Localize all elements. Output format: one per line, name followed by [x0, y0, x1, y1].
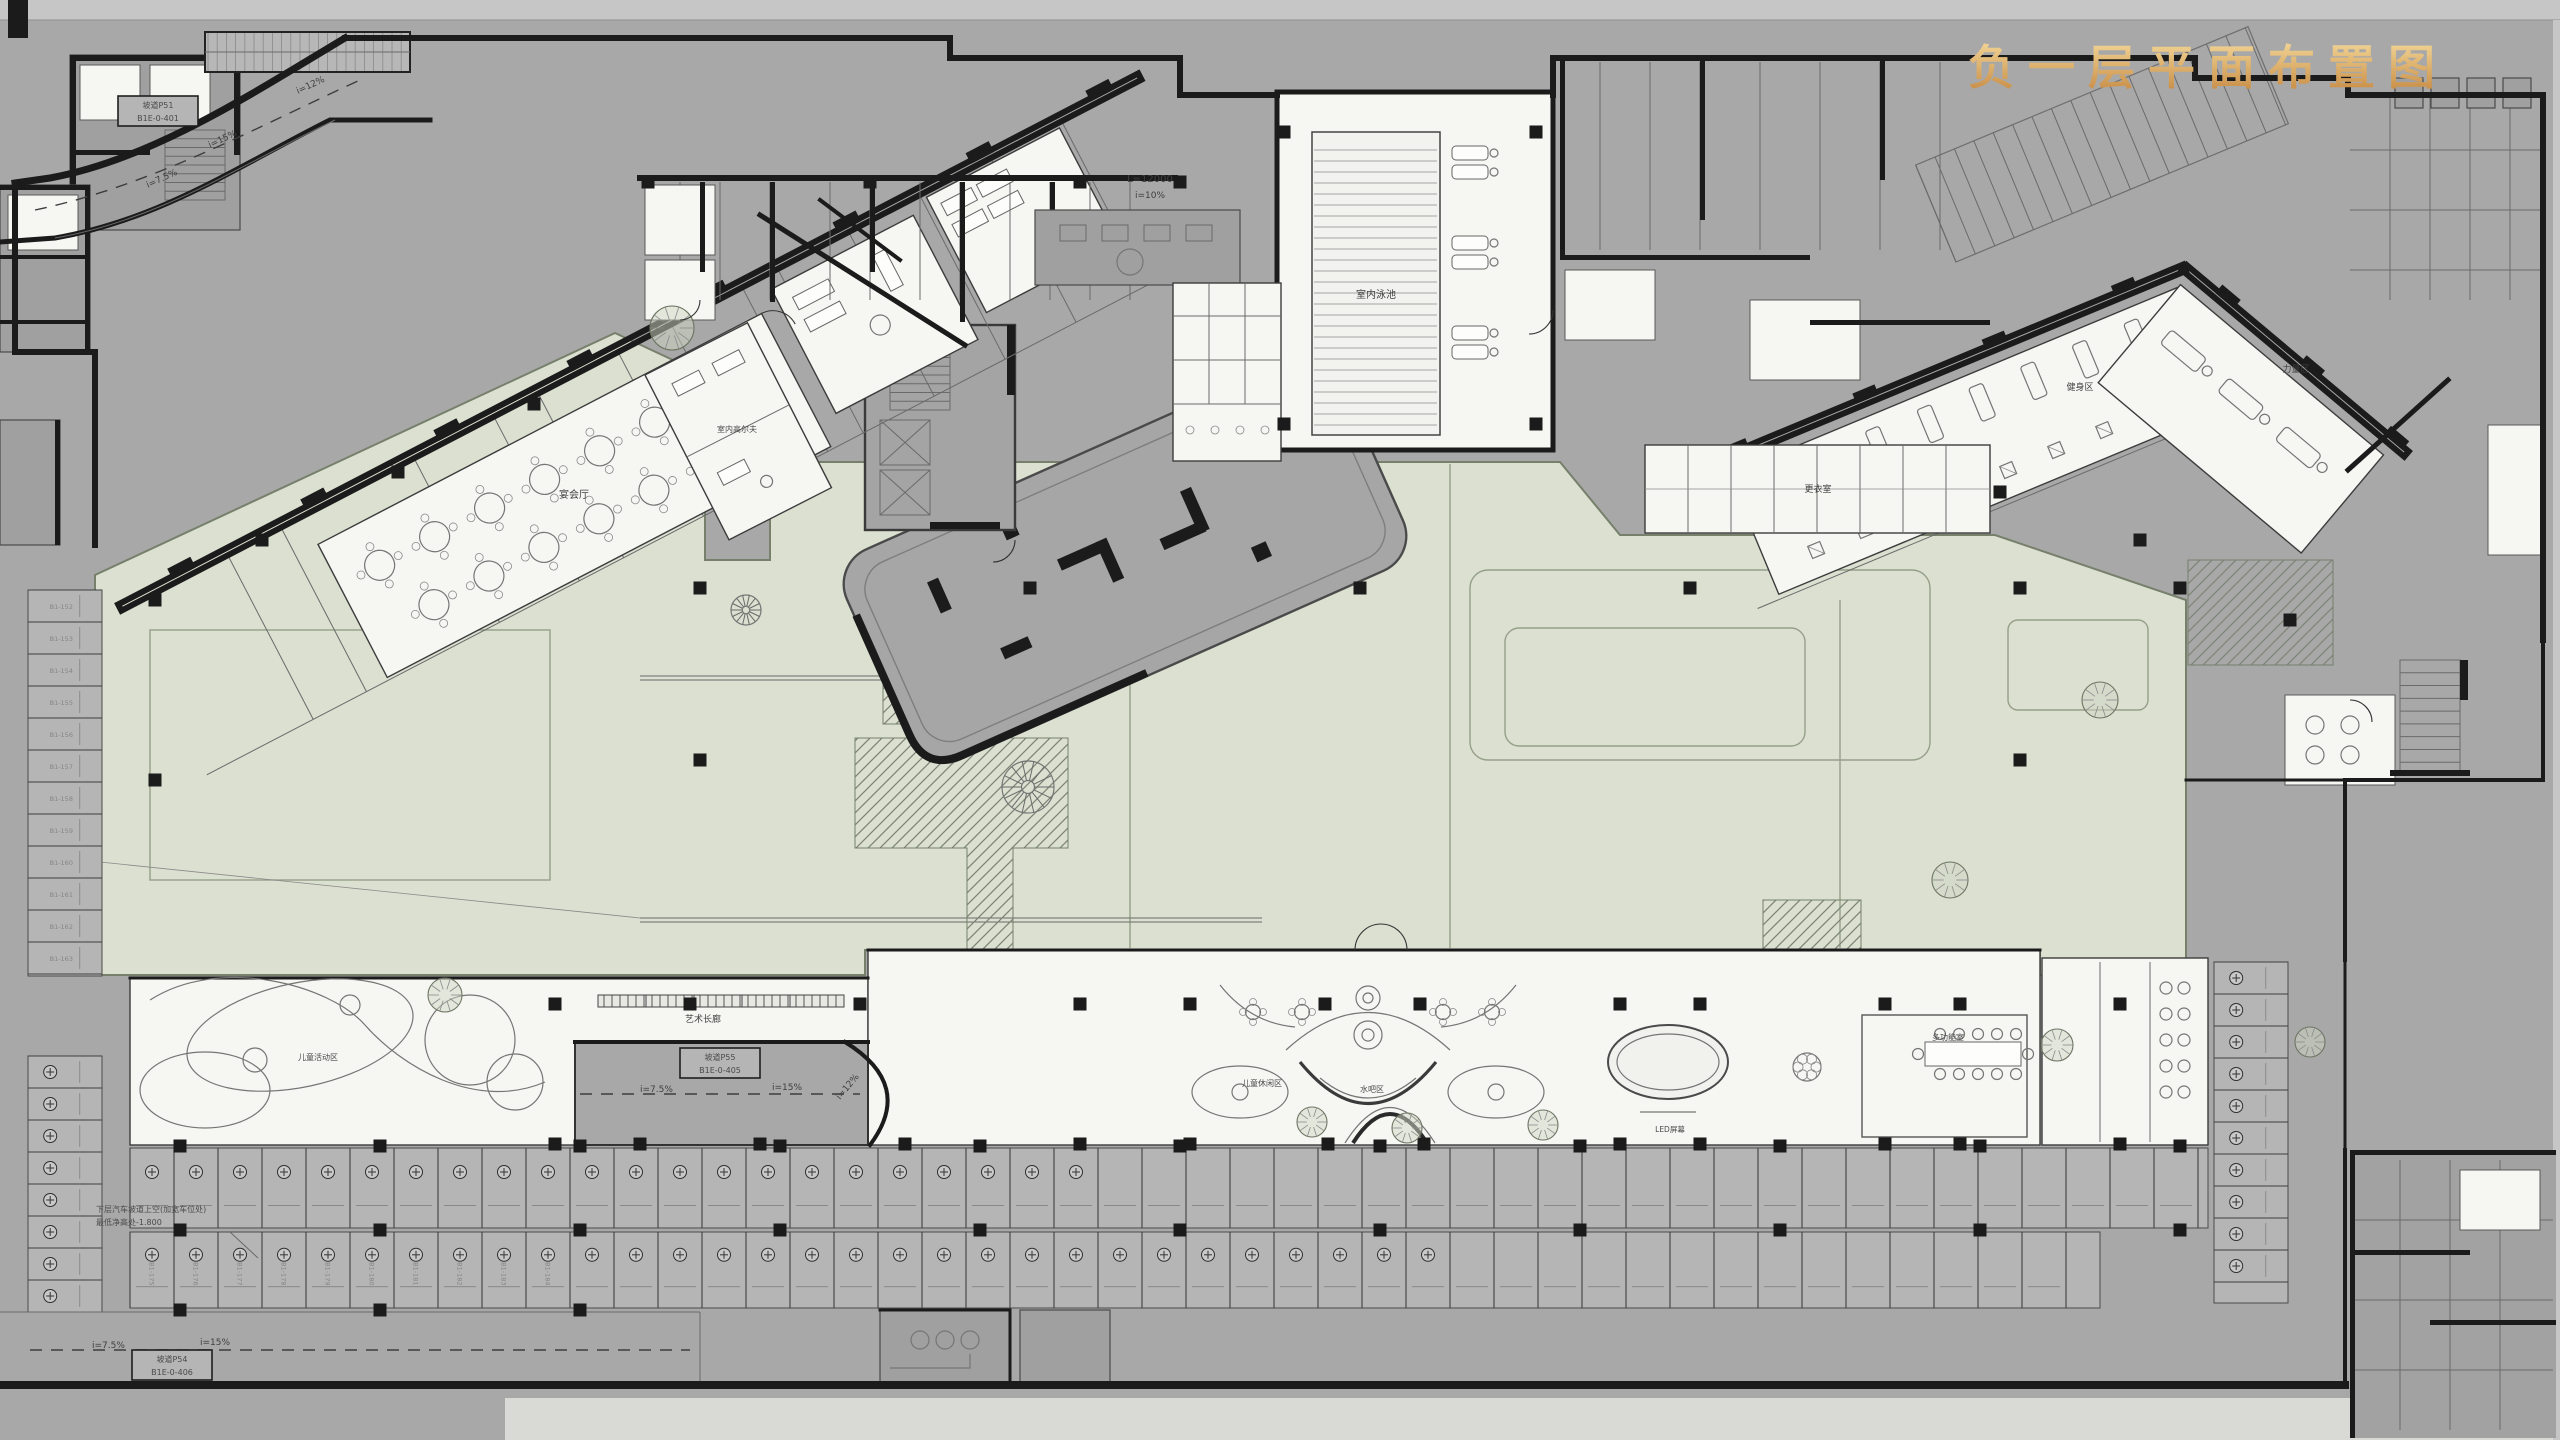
column	[1278, 126, 1291, 139]
stall-number: B1-182	[456, 1262, 464, 1285]
stall-number: B1-152	[50, 603, 73, 611]
column	[1974, 1224, 1987, 1237]
column	[2284, 614, 2297, 627]
bottom-right-block	[2350, 1150, 2556, 1438]
gallery-bench	[598, 995, 652, 1007]
gallery-bench	[790, 995, 844, 1007]
column	[1954, 998, 1967, 1011]
courtyard-hatch	[2188, 560, 2333, 665]
stall-number: B1-180	[368, 1262, 376, 1285]
stall-number: B1-157	[50, 763, 73, 771]
ramp-plate-label: 坡道P55	[704, 1052, 735, 1062]
pool-lounger	[1452, 326, 1488, 340]
column	[1574, 1224, 1587, 1237]
parking-column	[2214, 962, 2288, 1303]
column	[684, 998, 697, 1011]
column	[974, 1140, 987, 1153]
column	[149, 774, 162, 787]
column	[574, 1224, 587, 1237]
column	[2014, 754, 2027, 767]
column	[1418, 1138, 1431, 1151]
corridor-lounge	[868, 950, 2040, 1145]
column	[1074, 998, 1087, 1011]
column	[1354, 582, 1367, 595]
column	[2174, 582, 2187, 595]
banquet-label: 宴会厅	[559, 488, 589, 501]
led-label: LED屏幕	[1655, 1124, 1685, 1134]
pool-lounger	[1452, 236, 1488, 250]
parking-row	[130, 1148, 2208, 1228]
slope-label: i=7.5%	[640, 1085, 673, 1095]
stall-number: B1-160	[50, 859, 73, 867]
column	[1374, 1224, 1387, 1237]
column	[392, 466, 405, 479]
water-bar-label: 水吧区	[1360, 1084, 1384, 1094]
parking-row	[130, 1232, 2100, 1308]
clearance-note: 下层汽车坡道上空(加宽车位处)	[96, 1204, 206, 1214]
column	[774, 1224, 787, 1237]
ramp-plate-label: 坡道P54	[156, 1354, 187, 1364]
pool-lounger	[1452, 165, 1488, 179]
column	[374, 1224, 387, 1237]
stall-number: B1-184	[544, 1262, 552, 1285]
column	[1879, 1138, 1892, 1151]
stall-number: B1-183	[500, 1262, 508, 1285]
column	[1414, 998, 1427, 1011]
column	[1530, 418, 1543, 431]
slope-label: i=15%	[772, 1083, 802, 1093]
stall-number: B1-175	[148, 1262, 156, 1285]
column	[549, 1138, 562, 1151]
pool-lounger	[1452, 146, 1488, 160]
column	[1774, 1140, 1787, 1153]
swimming-pool	[1312, 132, 1440, 435]
gallery-bench	[694, 995, 748, 1007]
bottom-margin-strip	[505, 1398, 2560, 1440]
column	[1954, 1138, 1967, 1151]
column	[1879, 998, 1892, 1011]
slope-label: i=10%	[1135, 191, 1165, 201]
column	[1694, 998, 1707, 1011]
column	[1684, 582, 1697, 595]
column	[1174, 176, 1187, 189]
column	[1774, 1224, 1787, 1237]
column	[1319, 998, 1332, 1011]
ramp-plate-number: B1E-0-401	[137, 114, 179, 123]
column	[1530, 126, 1543, 139]
column	[2014, 582, 2027, 595]
column	[174, 1140, 187, 1153]
column	[174, 1224, 187, 1237]
parking-column	[28, 590, 102, 976]
gallery-label: 艺术长廊	[685, 1013, 721, 1025]
column	[1574, 1140, 1587, 1153]
kids-zone-label: 儿童活动区	[298, 1052, 338, 1062]
column	[1024, 582, 1037, 595]
pool-lounger	[1452, 345, 1488, 359]
changing-label: 更衣室	[1804, 483, 1831, 495]
drawing-title: 负一层平面布置图	[1968, 41, 2448, 96]
column	[2174, 1224, 2187, 1237]
column	[634, 1138, 647, 1151]
kids-lounge-label: 儿童休闲区	[1242, 1078, 1282, 1088]
stall-number: B1-156	[50, 731, 73, 739]
column	[574, 1304, 587, 1317]
column	[694, 582, 707, 595]
ramp-plate-number: B1E-0-406	[151, 1368, 193, 1377]
column	[642, 176, 655, 189]
stall-number: B1-178	[280, 1262, 288, 1285]
ramp-plate-number: B1E-0-405	[699, 1066, 741, 1075]
column	[974, 1224, 987, 1237]
column	[1174, 1140, 1187, 1153]
column	[1694, 1138, 1707, 1151]
column	[528, 398, 541, 411]
column	[1994, 486, 2007, 499]
gallery-benches	[598, 995, 844, 1007]
clearance-note: 最低净高处-1.800	[96, 1217, 162, 1227]
top-margin-strip	[0, 0, 2560, 20]
stall-number: B1-177	[236, 1262, 244, 1285]
column	[174, 1304, 187, 1317]
column	[1374, 1140, 1387, 1153]
column	[1184, 998, 1197, 1011]
column	[854, 998, 867, 1011]
golf-label: 室内高尔夫	[717, 424, 757, 434]
stall-number: B1-161	[50, 891, 73, 899]
column	[2114, 1138, 2127, 1151]
stall-number: B1-153	[50, 635, 73, 643]
gym-label: 健身区	[2066, 381, 2093, 393]
column	[374, 1304, 387, 1317]
plaza-hatch-area	[1763, 900, 1861, 954]
stall-number: B1-155	[50, 699, 73, 707]
pool-hall	[1277, 92, 1553, 450]
stall-number: B1-159	[50, 827, 73, 835]
column	[864, 176, 877, 189]
column	[899, 1138, 912, 1151]
column	[549, 998, 562, 1011]
strength-label: 力量区	[2282, 363, 2309, 375]
column	[1074, 176, 1087, 189]
stall-number: B1-179	[324, 1262, 332, 1285]
floor-plan-drawing: B1-175B1-176B1-177B1-178B1-179B1-180B1-1…	[0, 0, 2560, 1440]
column	[1322, 1138, 1335, 1151]
column	[1614, 1138, 1627, 1151]
gallery-bench	[742, 995, 796, 1007]
bottom-center-rooms	[880, 1310, 1110, 1386]
stall-number: B1-176	[192, 1262, 200, 1285]
column	[2174, 1140, 2187, 1153]
stall-number: B1-163	[50, 955, 73, 963]
column	[2134, 534, 2147, 547]
column	[1278, 418, 1291, 431]
pool-lounger	[1452, 255, 1488, 269]
ramp-length-label: L=12000	[1127, 174, 1173, 185]
column	[1614, 998, 1627, 1011]
stall-number: B1-154	[50, 667, 73, 675]
column	[256, 534, 269, 547]
multifunction-label: 多功能室	[1932, 1032, 1964, 1042]
stall-number: B1-181	[412, 1262, 420, 1285]
stall-number: B1-162	[50, 923, 73, 931]
stall-number: B1-158	[50, 795, 73, 803]
column	[574, 1140, 587, 1153]
column	[694, 754, 707, 767]
column	[1174, 1224, 1187, 1237]
floor-plan-page: B1-175B1-176B1-177B1-178B1-179B1-180B1-1…	[0, 0, 2560, 1440]
ramp-plate-label: 坡道P51	[142, 100, 173, 110]
column	[774, 1140, 787, 1153]
column	[1074, 1138, 1087, 1151]
slope-label: i=7.5%	[92, 1341, 125, 1351]
column	[2114, 998, 2127, 1011]
column	[1974, 1140, 1987, 1153]
pool-label: 室内泳池	[1356, 288, 1396, 301]
column	[754, 1138, 767, 1151]
column	[374, 1140, 387, 1153]
slope-label: i=15%	[200, 1338, 230, 1348]
corner-tab	[8, 0, 28, 38]
column	[149, 594, 162, 607]
